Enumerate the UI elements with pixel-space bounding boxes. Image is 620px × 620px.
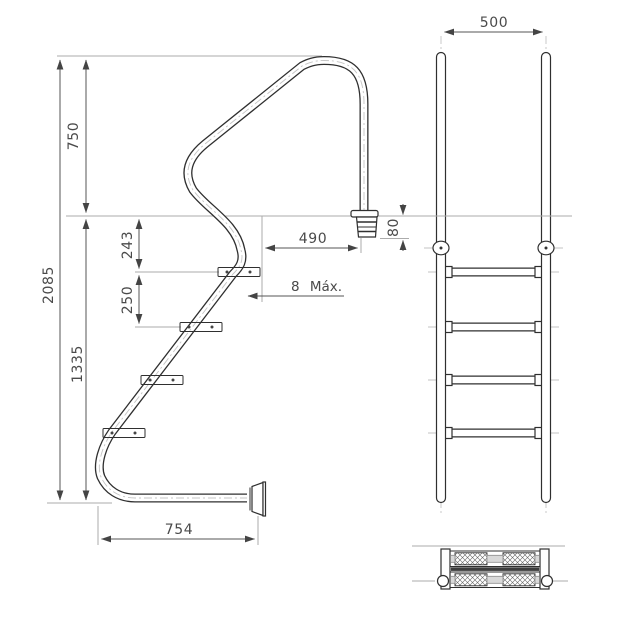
tread-tube-end [535, 555, 540, 562]
step-hole [149, 379, 152, 382]
step-hole [134, 432, 137, 435]
tread-pad [455, 553, 487, 565]
dim-handrail-reach-label: 490 [299, 231, 328, 247]
plan-tread-row-2 [450, 572, 540, 588]
dim-step-spacing-label: 250 [120, 286, 136, 315]
rung-2 [441, 322, 547, 333]
step-hole [172, 379, 175, 382]
tread-front-edge [451, 567, 539, 571]
tread-tube-end [535, 576, 540, 583]
rung-1 [441, 267, 547, 278]
dim-wall-clearance-label: 8 Máx. [291, 279, 342, 295]
deck-anchor-flange [351, 211, 378, 238]
step-hole [249, 271, 252, 274]
front-view-rungs [441, 267, 547, 439]
tread-pad [503, 574, 535, 586]
tread-pad [455, 574, 487, 586]
front-view: 500 [412, 15, 572, 516]
collar-pin [440, 247, 443, 250]
dim-base-length-label: 754 [165, 522, 194, 538]
ladder-technical-drawing: 2085 750 1335 243 250 490 8 Máx. 754 80 [0, 0, 620, 620]
cone-rim [263, 482, 266, 516]
dim-top-step-label: 243 [120, 231, 136, 260]
tread-tube-end [451, 555, 456, 562]
dim-handrail-height-label: 750 [66, 122, 82, 151]
tread-tube-center [487, 576, 503, 583]
wall-cone-mount [250, 482, 266, 516]
rail-tube-section-right [542, 576, 553, 587]
collar-pin [545, 247, 548, 250]
dim-ladder-width-label: 500 [480, 15, 509, 31]
rung-3 [441, 375, 547, 386]
anchor-collar-right [538, 241, 554, 255]
drawing-canvas: 2085 750 1335 243 250 490 8 Máx. 754 80 [0, 0, 620, 620]
cone-body [252, 483, 263, 516]
top-view [412, 546, 568, 589]
step-hole [111, 432, 114, 435]
tread-tube-end [451, 576, 456, 583]
step-hole [226, 271, 229, 274]
step-hole [211, 326, 214, 329]
tread-tube-center [487, 555, 503, 562]
plan-tread-row-1 [450, 551, 540, 567]
dim-total-height-label: 2085 [41, 266, 57, 304]
left-rail-tube [437, 53, 446, 503]
tread-pad [503, 553, 535, 565]
anchor-collar-left [433, 241, 449, 255]
right-rail-tube [542, 53, 551, 503]
rung-4 [441, 428, 547, 439]
anchor-cap [351, 211, 378, 218]
dim-anchor-depth-label: 80 [386, 218, 402, 237]
dim-submerged-height-label: 1335 [70, 345, 86, 383]
rail-tube-section-left [438, 576, 449, 587]
step-hole [188, 326, 191, 329]
